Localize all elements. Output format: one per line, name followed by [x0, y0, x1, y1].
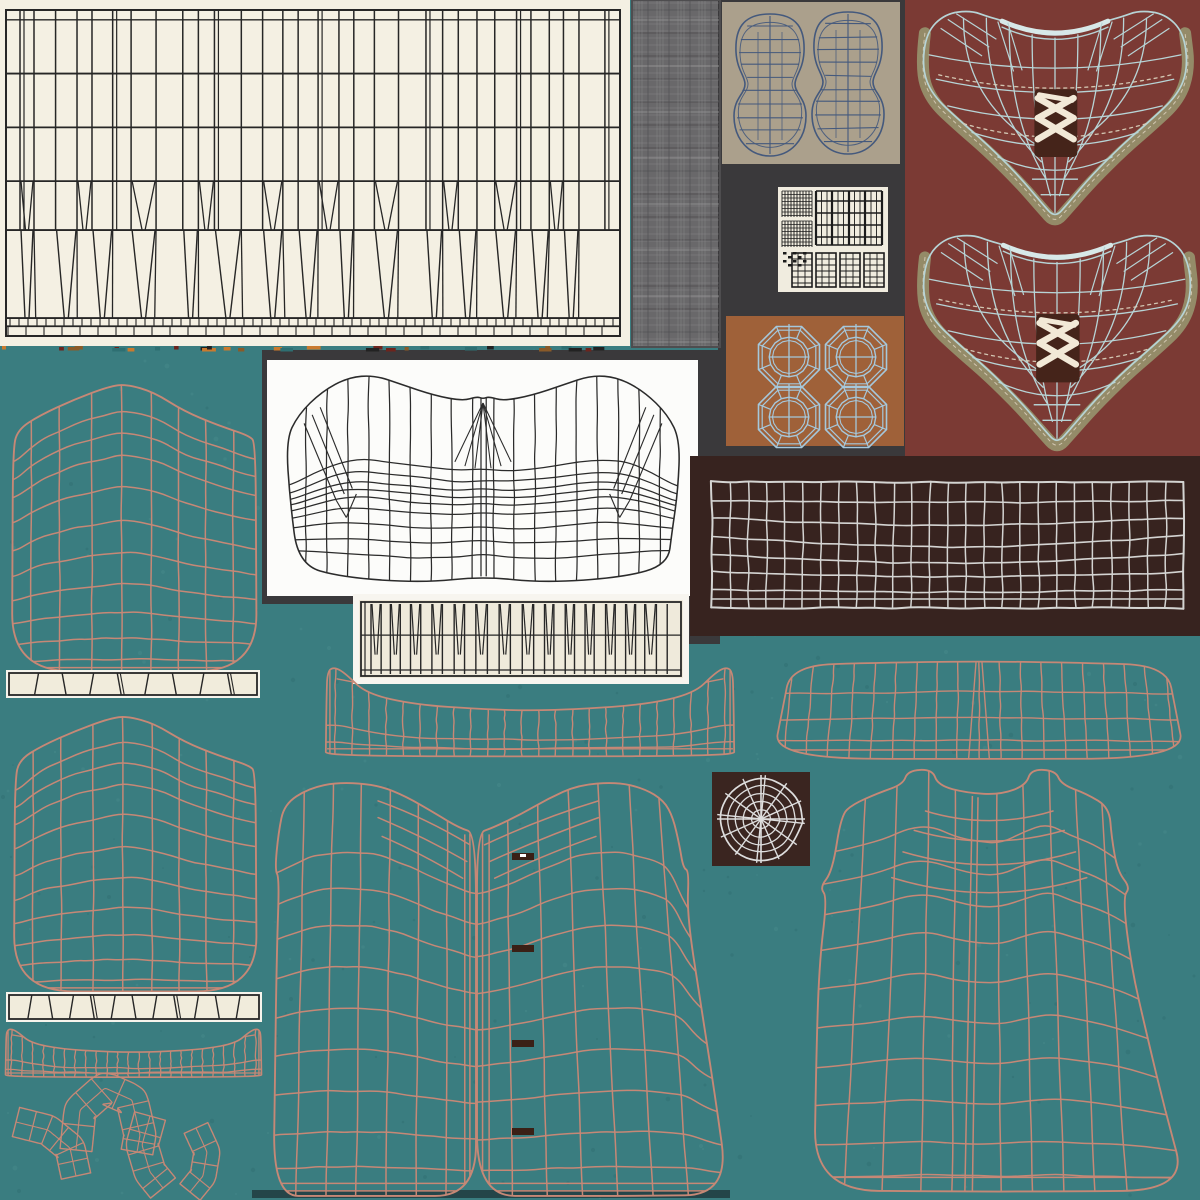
- panel-cream-large: [0, 0, 630, 346]
- atlas-canvas: [0, 0, 1200, 1200]
- cuff-strip-lower: [6, 992, 262, 1022]
- atlas-root: [0, 0, 1200, 1200]
- texture-atlas: [0, 0, 1200, 1200]
- cuff-strip-upper: [6, 670, 260, 698]
- panel-corset: [267, 360, 698, 596]
